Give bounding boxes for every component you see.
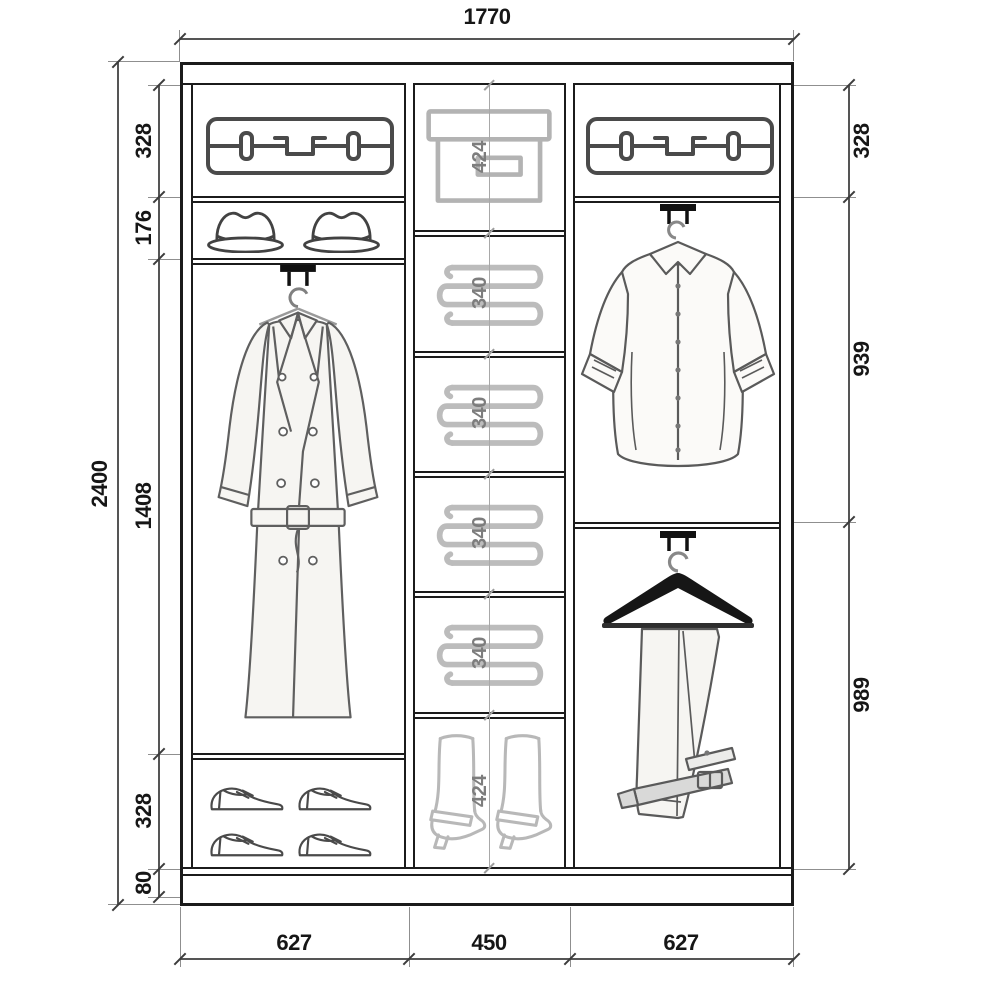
dim-total-height: 2400	[89, 461, 111, 508]
dimension-line	[848, 85, 850, 869]
fedora-hat-icons	[205, 206, 385, 254]
dim-right-column-width: 627	[663, 932, 698, 954]
suitcase-icon	[585, 116, 775, 176]
shirt-on-hanger-icon	[576, 202, 780, 482]
dim-right-shirt-section: 939	[851, 341, 873, 376]
dimension-line	[158, 85, 160, 897]
extension-line	[148, 897, 180, 898]
extension-line	[793, 30, 794, 61]
dim-left-column-width: 627	[276, 932, 311, 954]
extension-line	[148, 754, 180, 755]
hanger-hook-icon	[669, 222, 684, 238]
extension-line	[148, 869, 180, 870]
dim-right-trouser-section: 989	[851, 677, 873, 712]
dim-middle-column-width: 450	[471, 932, 506, 954]
wardrobe-dimension-diagram: 1770 2400 328 176 1408 328 80 328 939 98…	[0, 0, 1000, 1000]
dimension-line	[180, 958, 794, 960]
extension-line	[148, 85, 180, 86]
dim-middle-linen-shelf-3: 340	[470, 517, 490, 549]
dimension-line	[117, 62, 119, 905]
hanger-hook-icon	[670, 553, 687, 571]
hanger-hook-icon	[290, 289, 307, 307]
dim-left-hat-shelf: 176	[133, 210, 155, 245]
shelf-divider	[575, 522, 779, 529]
trench-coat-on-hanger-icon	[203, 263, 393, 759]
rail-bracket-icon	[660, 531, 696, 538]
dimension-line	[180, 38, 794, 40]
dim-middle-linen-shelf-1: 340	[470, 277, 490, 309]
dress-shoe-icons	[208, 782, 378, 870]
partition-panel-left	[404, 83, 415, 869]
dim-middle-boot-shelf: 424	[470, 775, 490, 807]
extension-line	[148, 259, 180, 260]
plinth-inner-line	[183, 874, 791, 876]
dim-total-width: 1770	[464, 6, 511, 28]
dim-middle-linen-shelf-4: 340	[470, 637, 490, 669]
dim-middle-linen-shelf-2: 340	[470, 397, 490, 429]
dimension-line	[489, 85, 490, 868]
rail-bracket-icon	[660, 204, 696, 211]
dim-left-plinth: 80	[133, 871, 155, 894]
extension-line	[148, 197, 180, 198]
trousers-on-hanger-icon	[580, 529, 776, 865]
dim-left-hanging: 1408	[133, 483, 155, 530]
wooden-hanger-icon	[603, 573, 752, 624]
dim-right-top-shelf: 328	[851, 123, 873, 158]
dim-middle-box-shelf: 424	[470, 141, 490, 173]
dim-left-shoe-shelf: 328	[133, 793, 155, 828]
rail-bracket-icon	[280, 265, 316, 272]
high-boot-icons	[426, 730, 556, 856]
partition-panel-right	[564, 83, 575, 869]
dim-left-top-shelf: 328	[133, 123, 155, 158]
suitcase-icon	[205, 116, 395, 176]
extension-line	[179, 30, 180, 61]
shelf-divider	[193, 196, 404, 203]
